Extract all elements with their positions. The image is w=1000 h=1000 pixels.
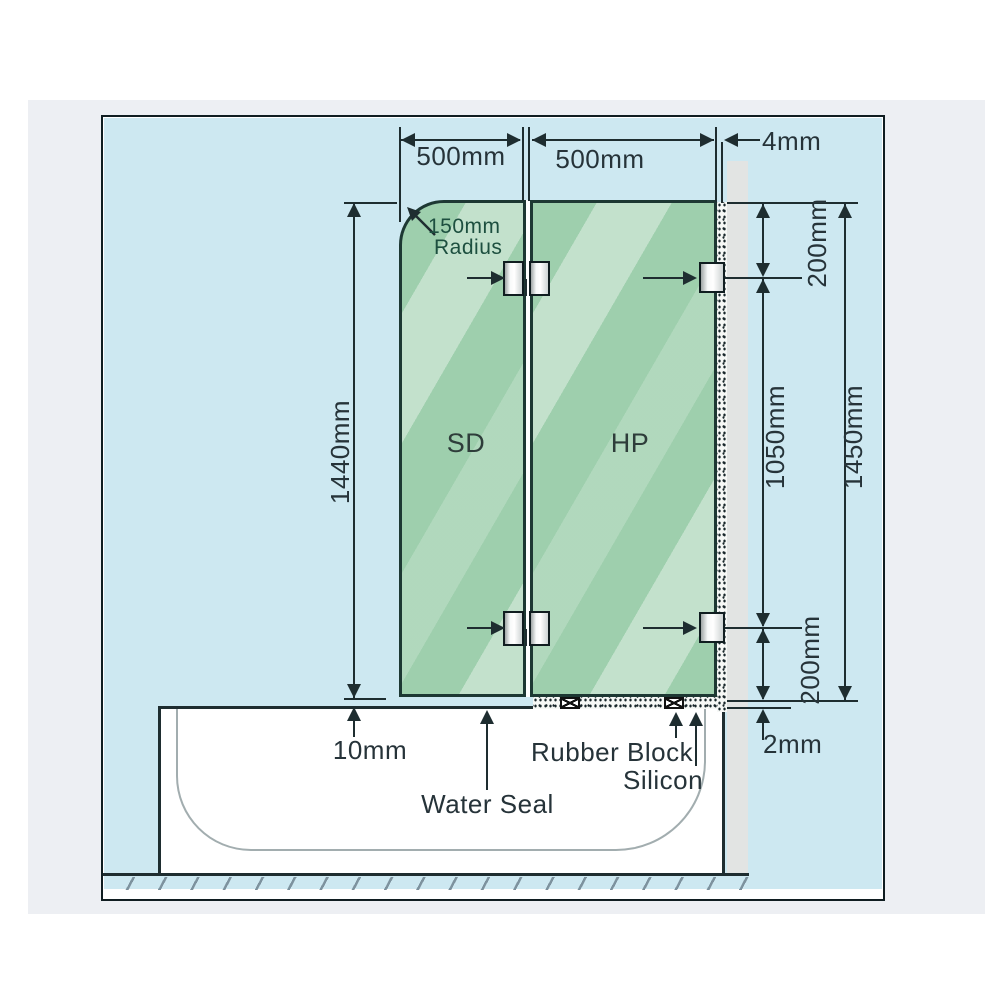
radius-note-line1: 150mm — [428, 216, 501, 237]
top-hinge-right-leaf — [529, 261, 550, 296]
wall-gap-label: 4mm — [762, 128, 821, 154]
bottom-hinge-pin — [525, 629, 527, 646]
dim-arrow-icon — [756, 629, 770, 643]
ext-line-glass-right — [715, 127, 717, 202]
ext-line-silicon — [721, 142, 723, 203]
panel-hp-label: HP — [604, 430, 656, 456]
glass-height-label: 1440mm — [327, 397, 353, 507]
shower-screen-diagram: SD HP 500mm 500mm 4mm 1440mm 10mm — [0, 0, 1000, 1000]
hp-width-dim-line — [532, 139, 714, 141]
bottom-hinge-arrow-icon — [491, 621, 505, 635]
dim-arrow-icon — [700, 133, 714, 147]
base-gap-label: 2mm — [763, 731, 822, 757]
tub-gap-label: 10mm — [330, 737, 410, 763]
top-offset-label: 200mm — [804, 188, 830, 298]
dim-arrow-icon — [724, 133, 738, 147]
dim-arrow-icon — [838, 204, 852, 218]
rubber-block-label: Rubber Block — [531, 739, 687, 765]
wall-gap-dim-line — [738, 139, 760, 141]
dim-arrow-icon — [756, 204, 770, 218]
silicon-label: Silicon — [623, 767, 703, 793]
dim-arrow-icon — [838, 686, 852, 700]
top-hinge-arrow-icon — [491, 271, 505, 285]
top-bracket-pointer-line — [643, 277, 685, 279]
silicon-arrow-icon — [689, 712, 703, 726]
rubber-block-right — [664, 697, 684, 709]
mid-span-label: 1050mm — [762, 377, 788, 497]
rubber-block-left — [560, 697, 580, 709]
panel-sd-label: SD — [440, 430, 492, 456]
ext-line-joint-a — [522, 127, 524, 201]
right-bottom-tick — [727, 700, 858, 702]
bottom-bracket-pointer-line — [643, 627, 685, 629]
dim-arrow-icon — [532, 133, 546, 147]
total-height-label: 1450mm — [840, 377, 866, 497]
bottom-hinge-left-leaf — [503, 611, 524, 646]
dim-arrow-icon — [347, 203, 361, 217]
wall — [727, 161, 748, 874]
bathtub-right-edge — [722, 700, 725, 874]
top-hinge-left-leaf — [503, 261, 524, 296]
dim-arrow-icon — [756, 263, 770, 277]
sd-width-label: 500mm — [402, 143, 520, 169]
dim-arrow-icon — [756, 279, 770, 293]
bottom-offset-label: 200mm — [797, 605, 823, 715]
bottom-bracket-arrow-icon — [683, 621, 697, 635]
water-seal-arrow-icon — [480, 710, 494, 724]
bathtub-left-edge — [158, 706, 161, 874]
bottom-hinge-right-leaf — [529, 611, 550, 646]
dim-arrow-icon — [756, 686, 770, 700]
floor-line — [103, 873, 749, 876]
floor-hatching — [103, 877, 749, 890]
bottom-wall-bracket — [699, 612, 725, 643]
tub-gap-arrow-stem — [353, 710, 355, 737]
rubber-block-arrow-icon — [669, 712, 683, 726]
radius-note-line2: Radius — [434, 237, 502, 258]
water-seal-label: Water Seal — [415, 791, 560, 817]
top-wall-bracket — [699, 262, 725, 293]
glass-bottom-tick — [344, 698, 386, 700]
hp-width-label: 500mm — [530, 146, 670, 172]
top-hinge-pin — [525, 279, 527, 296]
top-bracket-arrow-icon — [683, 271, 697, 285]
dim-arrow-icon — [347, 684, 361, 698]
dim-arrow-icon — [756, 613, 770, 627]
